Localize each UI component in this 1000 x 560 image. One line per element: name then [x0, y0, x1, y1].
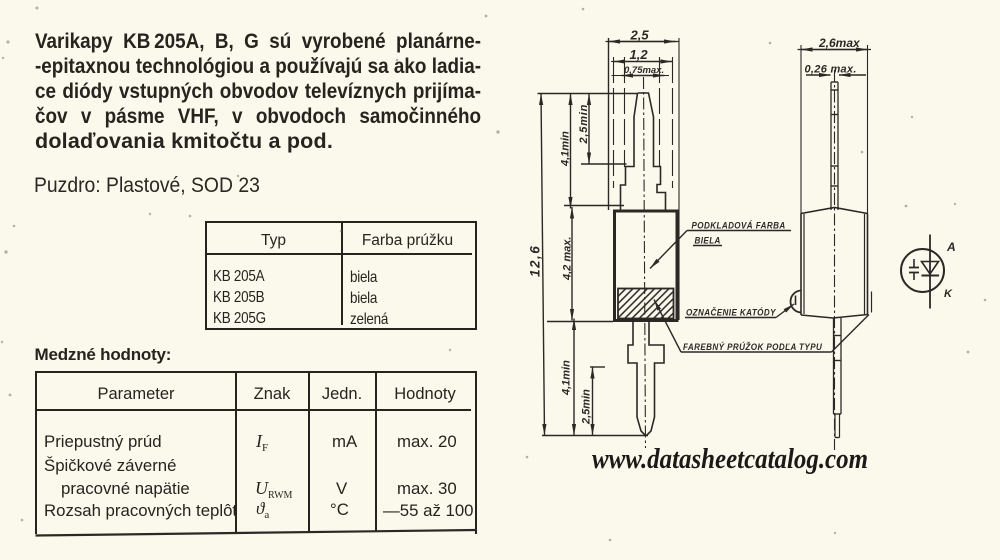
svg-text:12,6: 12,6	[528, 245, 543, 277]
svg-text:0,26 max.: 0,26 max.	[805, 64, 857, 76]
svg-text:1,2: 1,2	[630, 47, 649, 62]
svg-text:OZNAČENIE KATÓDY: OZNAČENIE KATÓDY	[686, 306, 777, 318]
svg-text:4,2 max.: 4,2 max.	[562, 237, 574, 281]
svg-text:4,1min: 4,1min	[561, 360, 573, 396]
svg-text:2,5: 2,5	[630, 28, 650, 43]
svg-text:0,75max.: 0,75max.	[624, 65, 664, 76]
svg-text:K: K	[944, 288, 953, 300]
svg-text:FAREBNÝ PRÚŽOK PODĽA TYPU: FAREBNÝ PRÚŽOK PODĽA TYPU	[683, 340, 822, 352]
svg-text:2,5min: 2,5min	[578, 104, 590, 145]
svg-text:BIELA: BIELA	[695, 235, 721, 246]
svg-text:2,5min: 2,5min	[581, 389, 593, 425]
svg-text:2,6max: 2,6max	[818, 36, 861, 50]
svg-text:A: A	[946, 240, 956, 254]
svg-text:PODKLADOVÁ FARBA: PODKLADOVÁ FARBA	[692, 220, 786, 231]
svg-text:4,1min: 4,1min	[560, 131, 572, 167]
